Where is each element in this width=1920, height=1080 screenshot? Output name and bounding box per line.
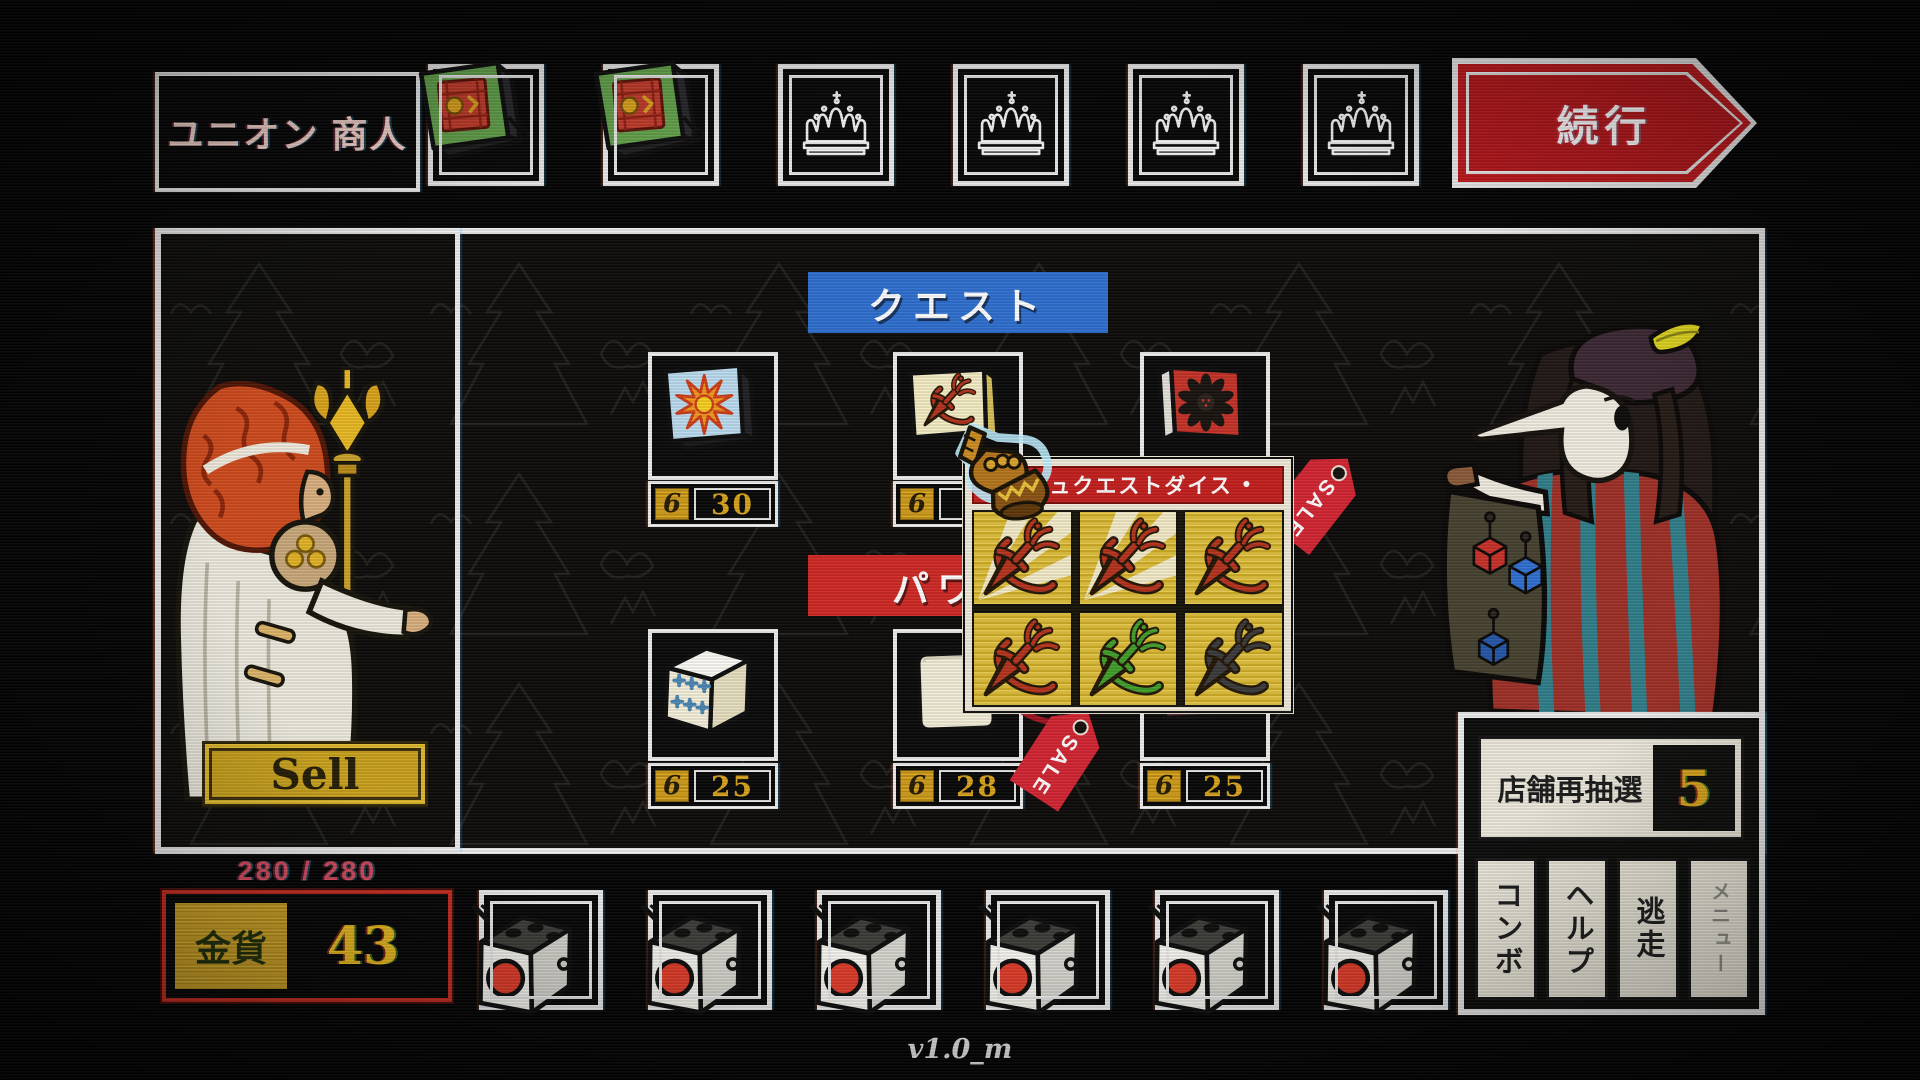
dagger-icon xyxy=(1189,617,1275,701)
price-value: 25 xyxy=(694,770,771,802)
shop-item-sunburst-die[interactable] xyxy=(648,352,778,480)
reroll-label: 店舗再抽選 xyxy=(1487,767,1653,809)
gold-currency-icon: 6 xyxy=(900,488,934,520)
combo-button-label: コンボ xyxy=(1485,880,1527,979)
gold-label: 金貨 xyxy=(175,903,287,989)
combo-button[interactable]: コンボ xyxy=(1475,858,1537,1000)
tooltip-bullet: • xyxy=(1243,473,1252,497)
price-value: 28 xyxy=(939,770,1016,802)
inventory-die-slot-1[interactable] xyxy=(479,890,603,1010)
red-dot-die-icon xyxy=(1300,892,1439,1031)
price-tag-blank-die: 6 28 xyxy=(893,763,1023,809)
red-dot-die-icon xyxy=(455,892,594,1031)
die-face-dagger xyxy=(1183,510,1284,606)
price-tag-sunburst-die: 6 30 xyxy=(648,481,778,527)
red-dot-die-icon xyxy=(793,892,932,1031)
hp-display: 280 / 280 xyxy=(155,856,460,887)
party-die-slot-2[interactable] xyxy=(603,64,719,186)
player-character-panel: Sell xyxy=(155,228,460,852)
price-tag-pips-die: 6 25 xyxy=(648,763,778,809)
green-die-icon xyxy=(585,52,717,184)
die-face-dagger-green xyxy=(1078,611,1179,707)
crown-icon xyxy=(958,69,1064,181)
continue-button-label: 続行 xyxy=(1556,93,1652,154)
game-screen: ユニオン 商人 続行 xyxy=(0,0,1920,1080)
menu-button[interactable]: メニュー xyxy=(1688,858,1750,1000)
inventory-die-slot-6[interactable] xyxy=(1324,890,1448,1010)
price-tag-mace-die: 6 25 xyxy=(1140,763,1270,809)
gold-currency-icon: 6 xyxy=(900,770,934,802)
inventory-die-slot-4[interactable] xyxy=(986,890,1110,1010)
gold-panel: 金貨 43 xyxy=(162,890,452,1002)
inventory-die-slot-2[interactable] xyxy=(648,890,772,1010)
dagger-icon xyxy=(1084,617,1170,701)
sell-button[interactable]: Sell xyxy=(202,741,428,807)
flee-button[interactable]: 逃走 xyxy=(1617,858,1679,1000)
shop-item-pips-die[interactable] xyxy=(648,629,778,761)
die-face-dagger-black xyxy=(1183,611,1284,707)
price-value: 25 xyxy=(1186,770,1263,802)
flee-button-label: 逃走 xyxy=(1627,896,1669,962)
sunburst-die-icon xyxy=(654,358,770,474)
gold-currency-icon: 6 xyxy=(1147,770,1181,802)
red-dot-die-icon xyxy=(1131,892,1270,1031)
red-dot-die-icon xyxy=(624,892,763,1031)
quest-section-banner: クエスト xyxy=(808,272,1108,333)
version-label: v1.0_m xyxy=(0,1034,1920,1065)
die-faces-grid xyxy=(972,510,1284,707)
inventory-die-slot-3[interactable] xyxy=(817,890,941,1010)
menu-button-label: メニュー xyxy=(1705,881,1734,977)
die-face-dagger xyxy=(972,611,1073,707)
shop-reroll-counter[interactable]: 店舗再抽選 5 xyxy=(1478,736,1744,840)
crown-icon xyxy=(1308,69,1414,181)
crown-icon xyxy=(1133,69,1239,181)
dagger-icon xyxy=(978,617,1064,701)
red-dot-die-icon xyxy=(962,892,1101,1031)
shop-title-label: ユニオン 商人 xyxy=(167,106,407,158)
dagger-icon xyxy=(1084,516,1170,600)
help-button-label: ヘルプ xyxy=(1556,880,1598,979)
merchant-character-portrait xyxy=(1422,300,1767,720)
inventory-die-slot-5[interactable] xyxy=(1155,890,1279,1010)
party-die-slot-3[interactable] xyxy=(778,64,894,186)
sell-button-label: Sell xyxy=(271,750,360,799)
party-die-slot-5[interactable] xyxy=(1128,64,1244,186)
cursor-gauntlet-icon xyxy=(944,399,1072,539)
gold-currency-icon: 6 xyxy=(655,488,689,520)
die-face-dagger xyxy=(1078,510,1179,606)
crown-icon xyxy=(783,69,889,181)
gold-value: 43 xyxy=(287,903,439,989)
continue-button[interactable]: 続行 xyxy=(1452,58,1757,188)
party-die-slot-1[interactable] xyxy=(428,64,544,186)
party-die-slot-6[interactable] xyxy=(1303,64,1419,186)
help-button[interactable]: ヘルプ xyxy=(1546,858,1608,1000)
blue-pips-die-icon xyxy=(654,635,770,751)
party-die-slot-4[interactable] xyxy=(953,64,1069,186)
price-value: 30 xyxy=(694,488,771,520)
gold-currency-icon: 6 xyxy=(655,770,689,802)
green-die-icon xyxy=(410,52,542,184)
dagger-icon xyxy=(1189,516,1275,600)
shop-controls-panel: 店舗再抽選 5 コンボ ヘルプ 逃走 メニュー xyxy=(1458,712,1765,1015)
reroll-count: 5 xyxy=(1653,745,1735,831)
shop-title: ユニオン 商人 xyxy=(155,72,420,192)
